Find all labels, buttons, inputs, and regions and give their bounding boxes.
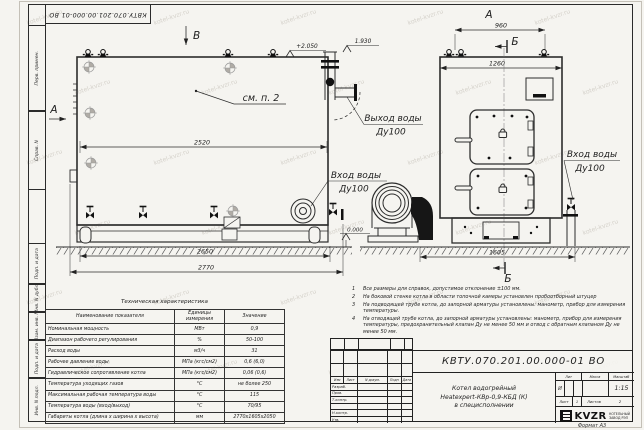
note-item: 4На отводящей трубе котла, до запорной а… [352, 316, 628, 335]
view-label-b-top: Б [511, 36, 518, 48]
kvzr-logo-caption: КОТЕЛЬНЫЙ ЗАВОД РЭП [609, 412, 630, 420]
scale-value: 1:15 [609, 381, 634, 396]
product-model: Heatexpert-КВр-0,9-КБД (К) [440, 394, 527, 403]
spec-header-row: Наименование показателя Единицы измерени… [46, 310, 285, 324]
inlet-valve-icon [329, 204, 337, 216]
title-block-right: Лит Масса Масштаб И 1:15 Лист 1 Листов 2… [556, 373, 634, 423]
dim-1260: 1260 [489, 61, 505, 68]
drain-valve-icon [86, 207, 94, 219]
spec-row: Рабочее давление водыМПа (кгс/см2)0,6 (6… [46, 357, 285, 368]
sheet-counter: Лист 1 Листов 2 [556, 397, 634, 407]
spec-row: Диапазон рабочего регулирования%50-100 [46, 335, 285, 346]
lit-mass-scale-headers: Лит Масса Масштаб [556, 373, 634, 381]
spec-row: Расход водым3/ч31 [46, 346, 285, 357]
spec-table-title: Техническая характеристика [45, 299, 284, 309]
note-item: 3На подводящей трубе котла, до запорной … [352, 302, 628, 315]
view-label-a-top: А [484, 9, 492, 21]
svg-text:Ду100: Ду100 [375, 128, 406, 138]
svg-text:Ду100: Ду100 [338, 185, 369, 195]
revision-strip [330, 338, 413, 350]
dim-960: 960 [495, 23, 507, 30]
door-lock-icon [499, 129, 507, 138]
svg-text:Вход воды: Вход воды [331, 171, 381, 181]
mass-value [583, 381, 609, 396]
svg-text:Выход воды: Выход воды [364, 114, 421, 124]
sig-row-utv: Утв. [331, 417, 412, 424]
spec-row: Номинальная мощностьМВт0,9 [46, 324, 285, 335]
product-title-cell: Котел водогрейный Heatexpert-КВр-0,9-КБД… [413, 373, 556, 423]
view-label-b-bottom: Б [504, 273, 511, 285]
title-block-left: Изм Лист N докум. Подп Дата Разраб. Пров… [331, 351, 413, 421]
product-variant: в специсполнении [454, 402, 513, 411]
door-lock-icon [499, 184, 507, 193]
spec-row: Температура воды (вход/выход)°С70/95 [46, 401, 285, 412]
rev-header-row: Изм Лист N докум. Подп Дата [331, 377, 412, 384]
note-item: 2На боковой стенке котла в области топоч… [352, 294, 628, 300]
kvzr-logo-icon [560, 410, 572, 422]
svg-text:Вход воды: Вход воды [567, 150, 617, 160]
see-note-ref: см. п. 2 [243, 93, 280, 104]
drain-valve-icon [210, 207, 218, 219]
elevation-top: +2.050 [296, 44, 318, 50]
view-label-v: В [193, 30, 200, 42]
notes-block: 1Все размеры для справок, допустимое отк… [352, 286, 628, 337]
doc-number-cell: КВТУ.070.201.00.000-01 ВО [413, 351, 634, 373]
side-view [70, 57, 328, 243]
elevation-ground: 0.000 [347, 228, 363, 234]
title-block: Изм Лист N докум. Подп Дата Разраб. Пров… [330, 350, 633, 422]
note-item: 1Все размеры для справок, допустимое отк… [352, 286, 628, 292]
dim-2520: 2520 [194, 140, 210, 147]
side-inlet-flange [291, 199, 315, 223]
spec-row: Максимальная рабочая температура воды°С1… [46, 390, 285, 401]
side-dimensions [70, 141, 343, 276]
spec-table: Техническая характеристика Наименование … [45, 299, 284, 424]
format-label: Формат А3 [551, 423, 633, 429]
outlet-pipe [321, 52, 360, 120]
kvzr-logo-text: KVZR [575, 411, 607, 422]
spec-row: Габариты котла (длина х ширина х высота)… [46, 412, 285, 423]
spec-row: Температура уходящих газов°Сне более 250 [46, 379, 285, 390]
product-name: Котел водогрейный [452, 385, 516, 394]
inlet-valve-icon [567, 199, 575, 211]
outlet-label: Выход воды Ду100 [347, 97, 423, 138]
lit-value: И [556, 381, 565, 396]
lit-mass-scale-values: И 1:15 [556, 381, 634, 397]
blast-duct-elbow [411, 197, 433, 240]
svg-text:Ду100: Ду100 [574, 164, 605, 174]
spec-row: Гидравлическое сопротивление котлаМПа (к… [46, 368, 285, 379]
front-inlet [563, 210, 578, 246]
drawing-sheet: { "sheet": { "stamp_top": "КВТУ.070.201.… [0, 0, 644, 430]
fan [368, 183, 418, 242]
dim-2770: 2770 [198, 265, 214, 272]
inlet-right-label: Вход воды Ду100 [564, 150, 620, 200]
doc-number: КВТУ.070.201.00.000-01 ВО [442, 356, 605, 367]
front-view [440, 48, 562, 266]
drain-valve-icon [139, 207, 147, 219]
view-label-a-side: А [49, 104, 57, 116]
elevation-outlet: 1.930 [355, 39, 372, 45]
